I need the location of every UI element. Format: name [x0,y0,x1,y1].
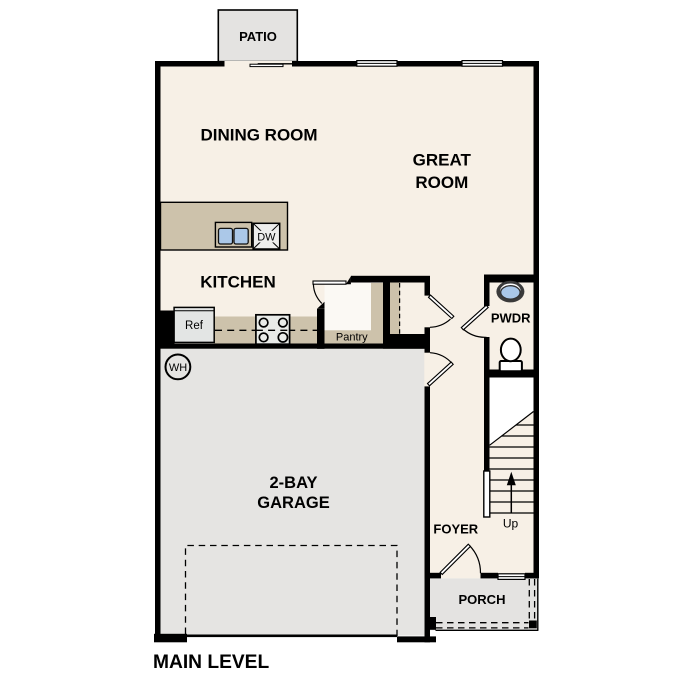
svg-text:Pantry: Pantry [336,332,368,344]
svg-text:Ref: Ref [185,320,204,332]
svg-text:GARAGE: GARAGE [257,494,329,512]
svg-text:FOYER: FOYER [433,522,478,537]
svg-text:ROOM: ROOM [415,173,468,192]
svg-text:PWDR: PWDR [491,311,531,326]
svg-text:PATIO: PATIO [239,29,277,44]
svg-text:GREAT: GREAT [413,151,472,170]
svg-text:DINING ROOM: DINING ROOM [200,126,317,145]
svg-text:PORCH: PORCH [459,592,506,607]
svg-text:DW: DW [257,231,276,243]
svg-text:KITCHEN: KITCHEN [200,273,276,292]
svg-text:WH: WH [169,362,187,374]
svg-text:Up: Up [503,517,519,531]
svg-text:MAIN LEVEL: MAIN LEVEL [153,652,269,673]
svg-text:2-BAY: 2-BAY [270,474,318,492]
